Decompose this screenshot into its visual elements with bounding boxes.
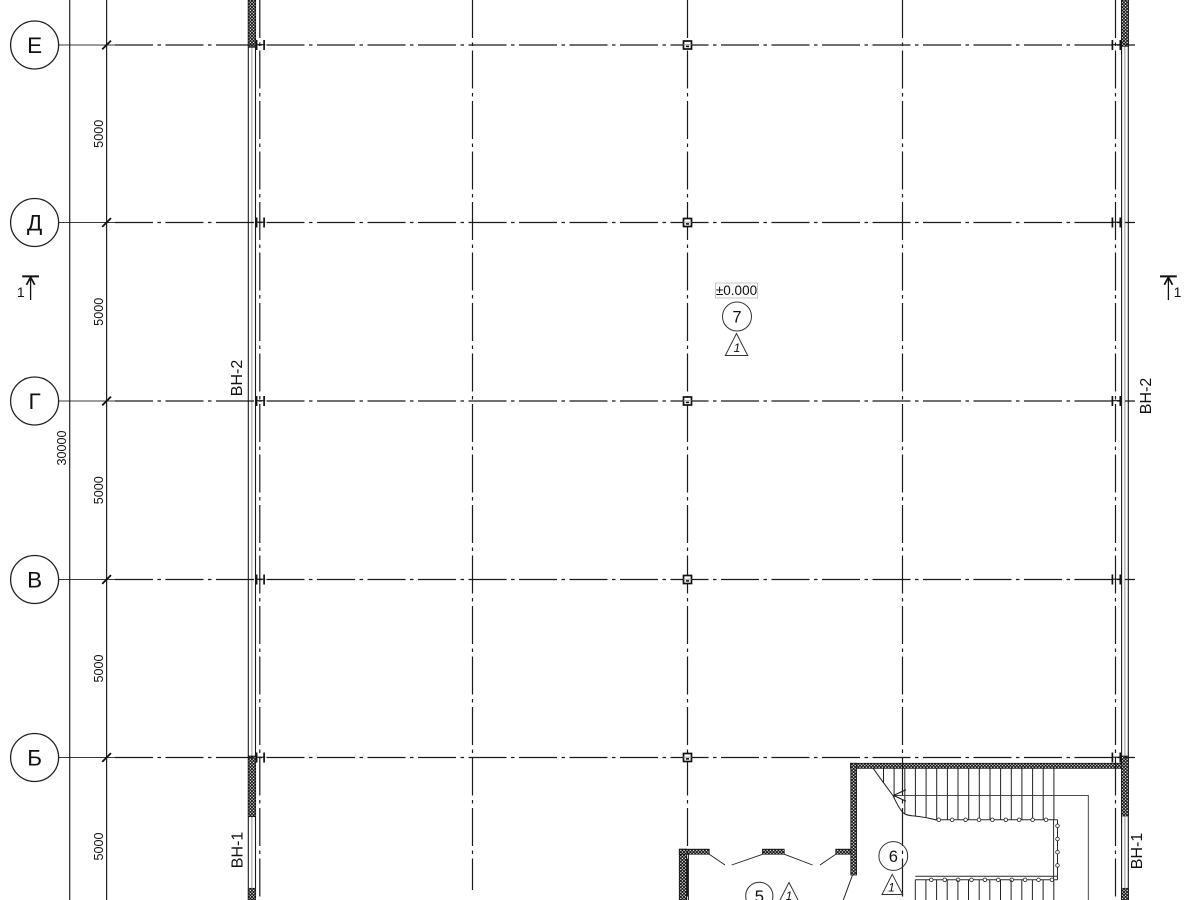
svg-text:6: 6 <box>889 848 898 866</box>
svg-text:1: 1 <box>786 889 793 900</box>
svg-text:30000: 30000 <box>55 430 69 465</box>
svg-text:5: 5 <box>755 888 764 900</box>
svg-text:ВН-1: ВН-1 <box>1129 833 1146 870</box>
svg-text:Г: Г <box>29 389 41 414</box>
svg-text:5000: 5000 <box>92 298 106 326</box>
svg-text:1: 1 <box>888 881 895 895</box>
svg-text:Б: Б <box>27 746 42 771</box>
svg-text:1: 1 <box>734 341 741 355</box>
svg-text:ВН-1: ВН-1 <box>230 832 247 869</box>
svg-text:1: 1 <box>17 284 25 300</box>
svg-text:5000: 5000 <box>92 120 106 148</box>
svg-text:7: 7 <box>732 309 741 327</box>
svg-text:В: В <box>27 568 42 593</box>
svg-text:5000: 5000 <box>92 832 106 860</box>
svg-text:ВН-2: ВН-2 <box>1138 378 1155 415</box>
svg-text:Е: Е <box>27 33 42 58</box>
svg-text:5000: 5000 <box>92 654 106 682</box>
svg-text:ВН-2: ВН-2 <box>229 360 246 397</box>
svg-text:Д: Д <box>27 211 42 236</box>
svg-text:5000: 5000 <box>92 476 106 504</box>
svg-text:±0.000: ±0.000 <box>716 283 757 298</box>
svg-text:1: 1 <box>1174 284 1182 300</box>
